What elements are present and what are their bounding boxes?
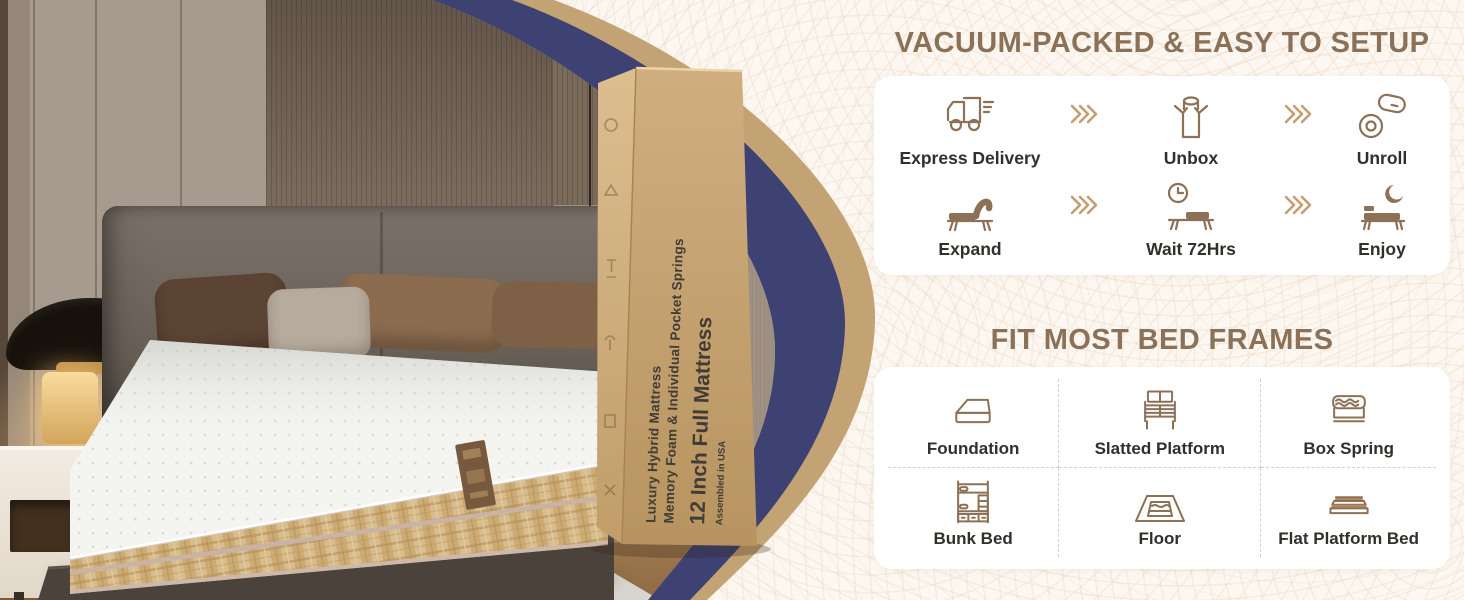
frame-foundation: Foundation	[888, 379, 1059, 468]
chevron-right-icon	[1069, 103, 1099, 125]
info-panel: VACUUM-PACKED & EASY TO SETUP Express De…	[866, 0, 1458, 600]
frame-slatted-platform: Slatted Platform	[1059, 379, 1261, 468]
mattress-listing-image: Luxury Hybrid Mattress Memory Foam & Ind…	[0, 0, 1464, 600]
clock-bed-icon	[1163, 180, 1219, 236]
box-spring-icon	[1323, 387, 1375, 435]
step-enjoy: Enjoy	[1354, 180, 1410, 260]
floor-icon	[1132, 477, 1188, 525]
slatted-platform-icon	[1134, 387, 1186, 435]
step-label: Unbox	[1164, 148, 1218, 169]
chevron-right-icon	[1283, 194, 1313, 216]
frame-box-spring: Box Spring	[1261, 379, 1436, 468]
step-unroll: Unroll	[1354, 89, 1410, 169]
foundation-icon	[947, 387, 999, 435]
frame-label: Bunk Bed	[933, 529, 1012, 549]
frame-bunk-bed: Bunk Bed	[888, 468, 1059, 557]
step-express-delivery: Express Delivery	[899, 89, 1040, 169]
unbox-icon	[1163, 89, 1219, 145]
bunk-bed-icon	[947, 477, 999, 525]
frame-flat-platform-bed: Flat Platform Bed	[1261, 468, 1436, 557]
step-label: Expand	[938, 239, 1001, 260]
flat-platform-icon	[1323, 477, 1375, 525]
setup-steps-card: Express Delivery Unbox	[874, 76, 1450, 275]
frame-label: Slatted Platform	[1095, 439, 1225, 459]
step-unbox: Unbox	[1163, 89, 1219, 169]
frame-floor: Floor	[1059, 468, 1261, 557]
step-label: Express Delivery	[899, 148, 1040, 169]
step-wait-72hrs: Wait 72Hrs	[1146, 180, 1236, 260]
frame-label: Foundation	[927, 439, 1020, 459]
chevron-right-icon	[1069, 194, 1099, 216]
setup-row-1: Express Delivery Unbox	[884, 84, 1444, 175]
frame-label: Floor	[1139, 529, 1182, 549]
setup-row-2: Expand Wait 72Hrs	[884, 175, 1444, 266]
frames-section-title: FIT MOST BED FRAMES	[866, 324, 1458, 357]
chevron-right-icon	[1283, 103, 1313, 125]
step-label: Unroll	[1357, 148, 1408, 169]
step-expand: Expand	[938, 180, 1001, 260]
delivery-truck-icon	[942, 89, 998, 145]
step-label: Enjoy	[1358, 239, 1406, 260]
setup-section-title: VACUUM-PACKED & EASY TO SETUP	[866, 27, 1458, 60]
bed-frames-card: Foundation Slatted Platform	[874, 367, 1450, 569]
unroll-icon	[1354, 89, 1410, 145]
nightstand-leg	[14, 592, 24, 600]
frame-label: Box Spring	[1303, 439, 1394, 459]
expand-icon	[942, 180, 998, 236]
sleep-moon-icon	[1354, 180, 1410, 236]
shipping-box: Luxury Hybrid Mattress Memory Foam & Ind…	[585, 55, 777, 575]
mattress	[30, 330, 630, 600]
step-label: Wait 72Hrs	[1146, 239, 1236, 260]
frame-label: Flat Platform Bed	[1278, 529, 1419, 549]
